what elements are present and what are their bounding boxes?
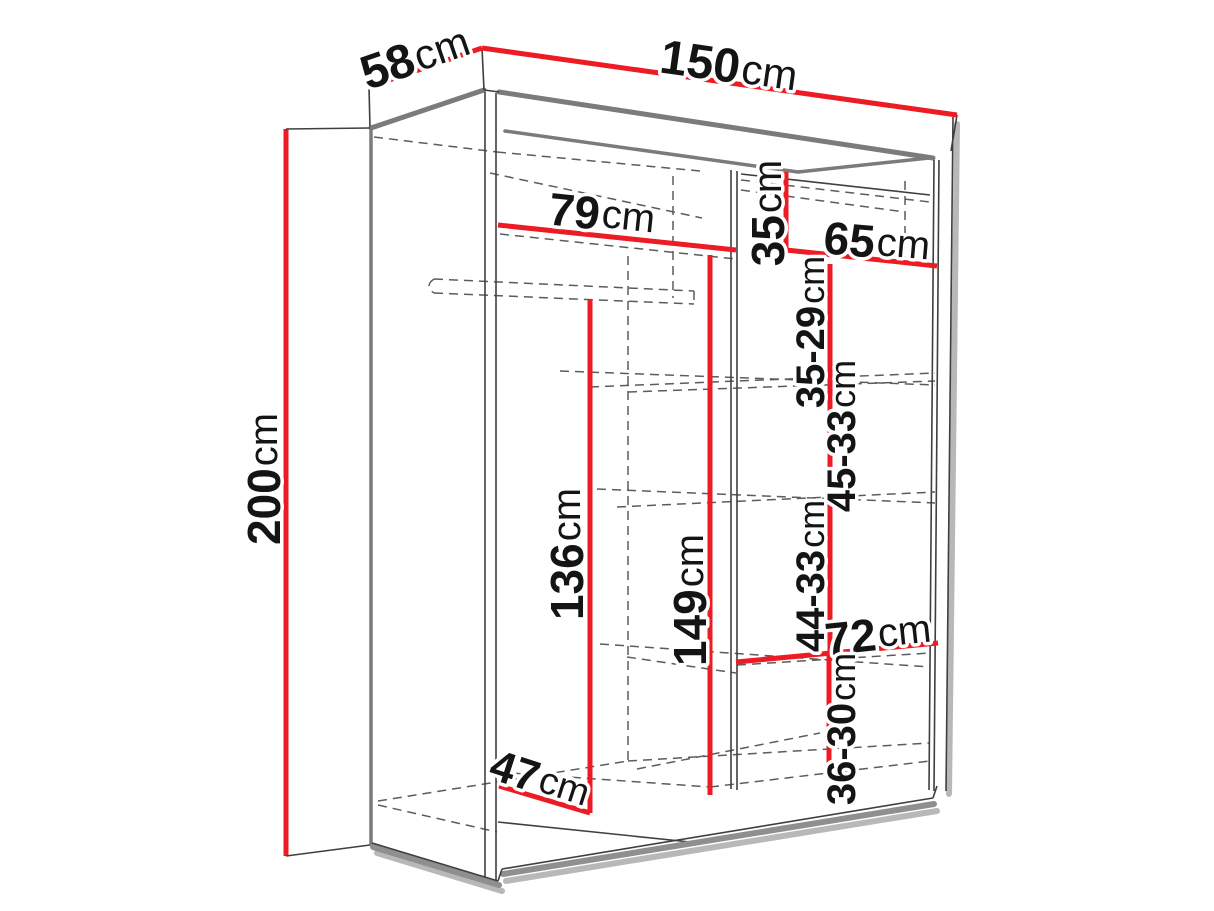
top-shelf-height-label: 35cm	[742, 160, 794, 267]
height-dim-top-tick	[286, 128, 370, 129]
left-panel-bottom-band	[373, 847, 499, 885]
hanging-rail-bottom-edge	[434, 293, 694, 304]
shelf-gap-4-label: 36-30cm	[820, 653, 864, 805]
left-panel-bottom-edge	[372, 843, 498, 881]
depth-dim-label: 58cm	[354, 14, 477, 100]
shelf1-depth-edge	[628, 381, 935, 392]
height-dim-bottom-tick	[286, 845, 370, 856]
right-panel-inner-edge-2	[934, 160, 939, 791]
floor-left-depth-edge	[378, 805, 497, 832]
shelf2-front-edge	[597, 489, 935, 503]
wardrobe-diagram-svg: 58cm 150cm 200cm 79cm 35cm 65cm 35-29cm …	[0, 0, 1214, 911]
height-dim-label: 200cm	[238, 413, 290, 545]
wardrobe-structure	[369, 48, 957, 891]
plinth-top-edge	[498, 822, 690, 842]
floor-depth-label: 47cm	[484, 740, 596, 818]
cornice-corner-edge	[482, 48, 484, 90]
left-panel-inner-top-edge	[374, 137, 497, 152]
hanging-rail-top-edge	[434, 279, 694, 291]
right-panel-inner-edge-1	[929, 160, 934, 790]
left-panel-top-edge	[371, 90, 484, 128]
hanging-height-label: 136cm	[541, 488, 593, 620]
dimension-labels: 58cm 150cm 200cm 79cm 35cm 65cm 35-29cm …	[238, 14, 934, 818]
right-section-width-label: 65cm	[822, 211, 933, 272]
floor-back-edge-right	[628, 743, 930, 761]
bottom-front-shadow	[506, 811, 937, 881]
bottom-left-shadow	[377, 853, 502, 891]
shelf1-front-edge	[560, 371, 935, 385]
shelf2-back-edge	[617, 492, 935, 507]
floor-depth-diagonal	[637, 733, 820, 769]
front-bottom-band	[503, 804, 934, 874]
interior-height-label: 149cm	[664, 534, 716, 666]
left-section-width-label: 79cm	[546, 183, 657, 246]
shelf1-back-edge	[590, 373, 935, 387]
width-dim-label: 150cm	[657, 30, 801, 102]
shelf-gap-2-label: 45-33cm	[820, 360, 864, 512]
hanging-rail-left-cap	[429, 279, 434, 293]
interior-right-top-edge	[798, 158, 929, 172]
cornice-corner-step	[484, 90, 499, 92]
wardrobe-dimension-diagram: 58cm 150cm 200cm 79cm 35cm 65cm 35-29cm …	[0, 0, 1214, 911]
